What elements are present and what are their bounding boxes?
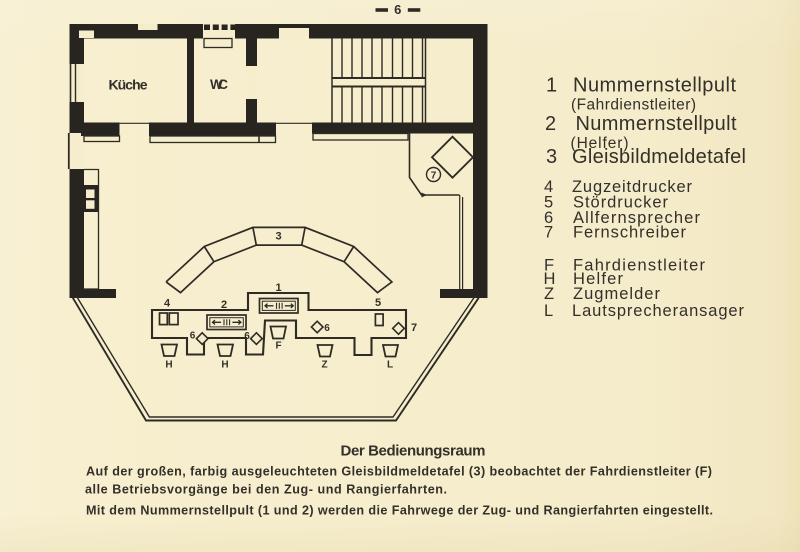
svg-text:3: 3 <box>275 231 281 243</box>
svg-text:Z: Z <box>544 285 554 303</box>
svg-text:7: 7 <box>544 224 553 242</box>
svg-text:H: H <box>221 360 228 371</box>
svg-text:2: 2 <box>545 113 556 135</box>
svg-text:Der Bedienungsraum: Der Bedienungsraum <box>341 443 486 460</box>
svg-text:3: 3 <box>546 146 557 168</box>
svg-text:L: L <box>544 302 553 320</box>
svg-text:6: 6 <box>324 323 330 334</box>
svg-text:(Fahrdienstleiter): (Fahrdienstleiter) <box>571 97 696 114</box>
svg-text:4: 4 <box>164 298 171 310</box>
svg-text:7: 7 <box>411 322 417 334</box>
svg-text:Nummernstellpult: Nummernstellpult <box>573 75 736 97</box>
svg-text:5: 5 <box>375 297 381 309</box>
svg-text:alle Betriebsvorgänge bei den: alle Betriebsvorgänge bei den Zug- und R… <box>85 482 447 496</box>
svg-text:L: L <box>387 360 393 371</box>
svg-text:Zugmelder: Zugmelder <box>573 285 661 303</box>
svg-text:Fernschreiber: Fernschreiber <box>573 224 687 242</box>
svg-text:6: 6 <box>394 2 401 17</box>
svg-text:Mit dem Nummernstellpult (1 un: Mit dem Nummernstellpult (1 und 2) werde… <box>86 504 713 518</box>
svg-text:6: 6 <box>190 331 196 342</box>
svg-text:WC: WC <box>210 77 228 92</box>
svg-text:Nummernstellpult: Nummernstellpult <box>576 113 737 135</box>
svg-text:Auf der großen, farbig ausgele: Auf der großen, farbig ausgeleuchteten G… <box>86 465 712 479</box>
svg-text:1: 1 <box>546 75 557 97</box>
svg-text:1: 1 <box>275 282 281 294</box>
svg-text:Gleisbildmeldetafel: Gleisbildmeldetafel <box>572 146 746 168</box>
svg-text:Küche: Küche <box>109 77 148 93</box>
svg-text:Z: Z <box>321 360 327 371</box>
svg-text:H: H <box>165 360 172 371</box>
svg-text:7: 7 <box>431 170 437 181</box>
svg-text:F: F <box>275 341 281 352</box>
svg-text:Lautsprecheransager: Lautsprecheransager <box>572 302 745 320</box>
svg-text:6: 6 <box>244 331 250 342</box>
svg-text:2: 2 <box>221 299 227 311</box>
